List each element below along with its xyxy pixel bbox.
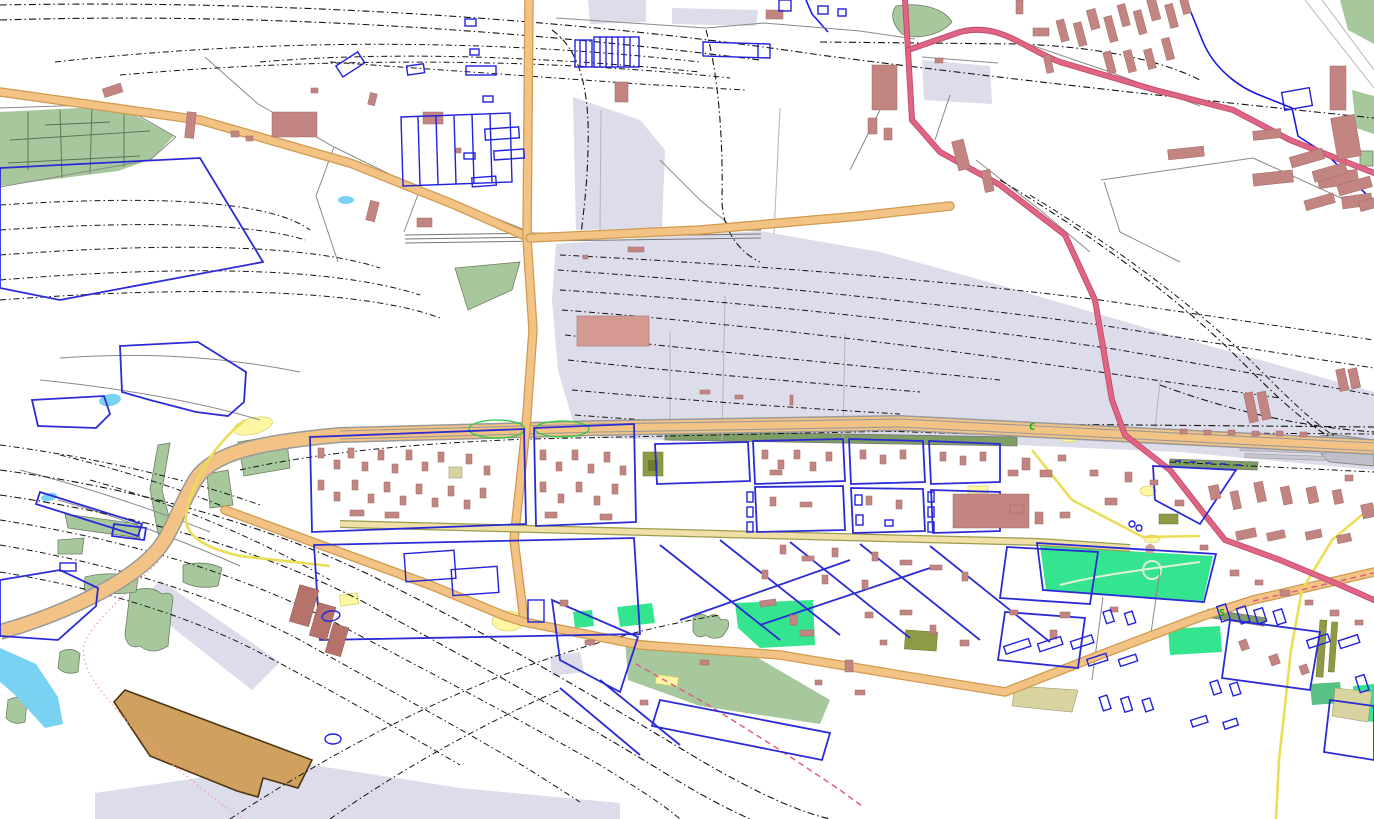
industrial-small-buildings — [318, 448, 1029, 589]
brownfield-polygon — [114, 690, 312, 797]
trunk-highway — [0, 423, 1374, 632]
hatched-building — [575, 37, 770, 67]
city-park — [1040, 546, 1213, 601]
map-label-c: C — [1029, 422, 1035, 433]
trunk-highway-casing — [0, 423, 1374, 632]
map-label-s: S — [1219, 608, 1225, 619]
allotment-field — [0, 106, 174, 186]
map-canvas: C S — [0, 0, 1374, 819]
map-svg: C S — [0, 0, 1374, 819]
